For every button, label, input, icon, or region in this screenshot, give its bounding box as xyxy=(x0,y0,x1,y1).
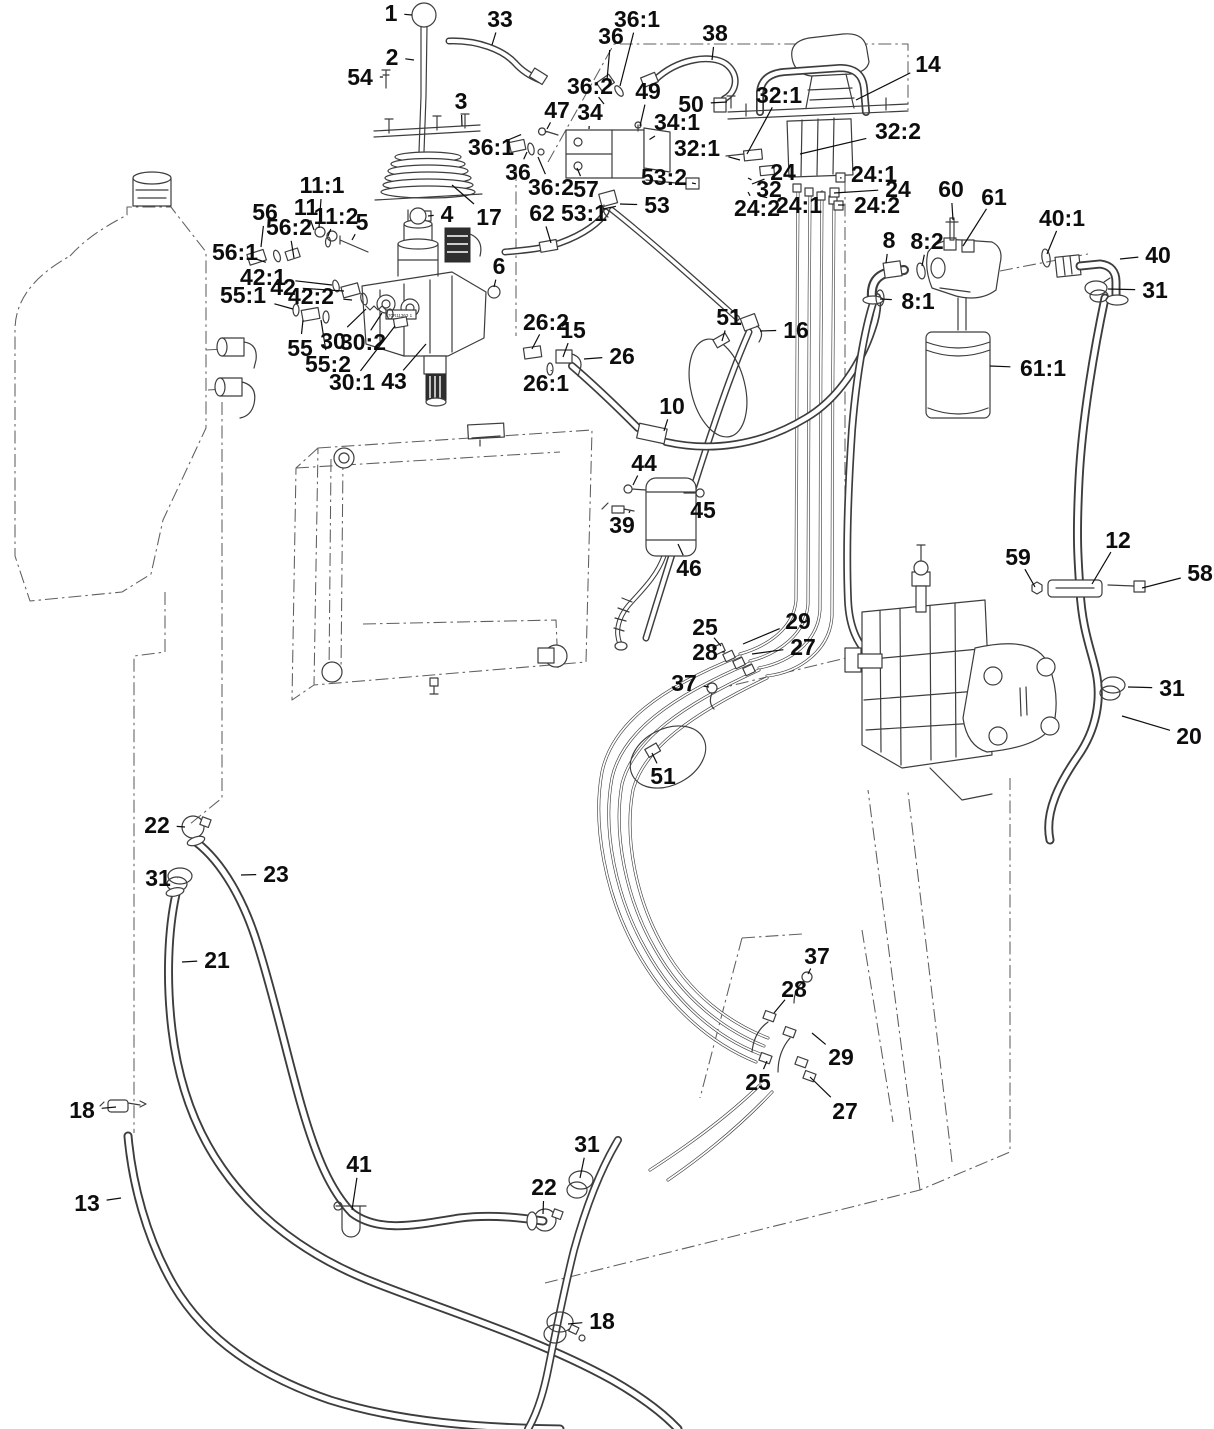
callout-label-27-l: 27 xyxy=(832,1098,858,1124)
callout-leader-16 xyxy=(760,331,776,332)
callout-label-55-1: 55:1 xyxy=(220,282,266,308)
callout-label-18-l: 18 xyxy=(69,1097,95,1123)
callout-label-49: 49 xyxy=(635,78,661,104)
callout-label-12: 12 xyxy=(1105,527,1131,553)
callout-label-53: 53 xyxy=(644,192,670,218)
callout-label-21: 21 xyxy=(204,947,230,973)
fitting-62 xyxy=(539,240,557,253)
callout-label-30-1: 30:1 xyxy=(329,369,375,395)
callout-label-43: 43 xyxy=(381,368,407,394)
fitting-37-u xyxy=(707,683,717,693)
callout-label-3: 3 xyxy=(455,88,468,114)
callout-label-25-u: 25 xyxy=(692,614,718,640)
callout-label-31-ll: 31 xyxy=(145,865,171,891)
callout-label-40: 40 xyxy=(1145,242,1171,268)
callout-label-26-1: 26:1 xyxy=(523,370,569,396)
callout-label-34-1: 34:1 xyxy=(654,109,700,135)
callout-label-28-u: 28 xyxy=(692,639,718,665)
callout-label-57: 57 xyxy=(573,176,599,202)
callout-label-39: 39 xyxy=(609,512,635,538)
callout-label-58: 58 xyxy=(1187,560,1213,586)
diagram-canvas: 70R11363 1 xyxy=(0,0,1214,1429)
callout-label-24-1-l: 24:1 xyxy=(776,192,822,218)
callout-label-56-1: 56:1 xyxy=(212,239,258,265)
callout-label-22-l: 22 xyxy=(144,812,170,838)
hose-46-end xyxy=(615,642,627,650)
callout-label-27-u: 27 xyxy=(790,634,816,660)
callout-label-47: 47 xyxy=(544,97,570,123)
valve-sticker-text: 70R11363 1 xyxy=(388,313,413,318)
reservoir-46-body xyxy=(646,478,696,556)
tank-filler-cap-top xyxy=(133,172,171,184)
callout-label-51-top: 51 xyxy=(716,304,742,330)
callout-label-4: 4 xyxy=(441,201,454,227)
cooler-port-bl xyxy=(322,662,342,682)
callout-label-61-1: 61:1 xyxy=(1020,355,1066,381)
callout-label-8-1: 8:1 xyxy=(901,288,934,314)
callout-leader-8-1 xyxy=(880,299,892,300)
parts-diagram-page: 70R11363 1 xyxy=(0,0,1214,1429)
callout-label-42-2: 42:2 xyxy=(288,283,334,309)
callout-label-23: 23 xyxy=(263,861,289,887)
cooler-port-br-stub xyxy=(538,648,554,663)
callout-label-20: 20 xyxy=(1176,723,1202,749)
callout-label-53-2: 53:2 xyxy=(641,164,687,190)
callout-label-51-low: 51 xyxy=(650,763,676,789)
callout-label-46: 46 xyxy=(676,555,702,581)
callout-label-8-2: 8:2 xyxy=(910,228,943,254)
oil-filter-61-1 xyxy=(926,332,990,418)
callout-label-44: 44 xyxy=(631,450,657,476)
callout-label-40-1: 40:1 xyxy=(1039,205,1085,231)
callout-label-29-l: 29 xyxy=(828,1044,854,1070)
callout-leader-31-rm xyxy=(1128,687,1152,688)
callout-label-15: 15 xyxy=(560,317,586,343)
callout-label-37-l: 37 xyxy=(804,943,830,969)
callout-leader-61-1 xyxy=(990,366,1010,367)
fitting-hose38-end-b xyxy=(714,98,726,112)
callout-label-36-2-top: 36:2 xyxy=(567,73,613,99)
callout-label-54: 54 xyxy=(347,64,373,90)
console-valve-block xyxy=(787,119,853,177)
callout-label-26: 26 xyxy=(609,343,635,369)
callout-label-10: 10 xyxy=(659,393,685,419)
cooler-port-tl xyxy=(334,448,354,468)
callout-label-30-2: 30:2 xyxy=(340,329,386,355)
callout-label-36-l: 36 xyxy=(505,159,531,185)
callout-label-34: 34 xyxy=(577,99,603,125)
callout-label-5: 5 xyxy=(356,209,369,235)
callout-label-61: 61 xyxy=(981,184,1007,210)
callout-label-53-1: 53:1 xyxy=(561,200,607,226)
callout-label-36-1-top: 36:1 xyxy=(614,6,660,32)
callout-label-33: 33 xyxy=(487,6,513,32)
callout-label-41: 41 xyxy=(346,1151,372,1177)
callout-label-37-u: 37 xyxy=(671,670,697,696)
callout-leader-4 xyxy=(428,215,434,216)
callout-leader-42-2 xyxy=(343,299,352,300)
callout-label-62: 62 xyxy=(529,200,555,226)
callout-label-36-2-l: 36:2 xyxy=(528,174,574,200)
callout-label-38: 38 xyxy=(702,20,728,46)
callout-label-17: 17 xyxy=(476,204,502,230)
callout-label-24-2-r: 24:2 xyxy=(854,192,900,218)
callout-label-14: 14 xyxy=(915,51,941,77)
shift-knob xyxy=(412,3,436,27)
callout-label-6: 6 xyxy=(493,253,506,279)
callout-label-45: 45 xyxy=(690,497,716,523)
callout-leader-1 xyxy=(404,14,412,15)
callout-label-1: 1 xyxy=(385,0,398,26)
callout-label-32-1-mid: 32:1 xyxy=(674,135,720,161)
callout-label-22-b: 22 xyxy=(531,1174,557,1200)
callout-label-25-l: 25 xyxy=(745,1069,771,1095)
callout-label-56-2: 56:2 xyxy=(266,214,312,240)
callout-label-2: 2 xyxy=(386,44,399,70)
callout-label-24-2-l: 24:2 xyxy=(734,195,780,221)
callout-leader-22-b xyxy=(543,1201,544,1214)
callout-leader-53-2 xyxy=(692,183,696,184)
callout-label-32-1-top: 32:1 xyxy=(756,82,802,108)
callout-leader-53 xyxy=(620,204,637,205)
callout-leader-22-l xyxy=(177,826,185,827)
callout-label-29-u: 29 xyxy=(785,608,811,634)
callout-label-18-b: 18 xyxy=(589,1308,615,1334)
callout-label-31-b: 31 xyxy=(574,1131,600,1157)
callout-label-59: 59 xyxy=(1005,544,1031,570)
callout-label-13: 13 xyxy=(74,1190,100,1216)
callout-label-32-2: 32:2 xyxy=(875,118,921,144)
callout-label-60: 60 xyxy=(938,176,964,202)
callout-label-36-1-l: 36:1 xyxy=(468,134,514,160)
callout-label-31-tr: 31 xyxy=(1142,277,1168,303)
callout-leader-31-tr xyxy=(1108,289,1135,290)
callout-label-31-rm: 31 xyxy=(1159,675,1185,701)
valve-bottom-coupler xyxy=(424,356,446,406)
callout-label-11-2: 11:2 xyxy=(314,203,359,229)
callout-label-8: 8 xyxy=(883,227,896,253)
callout-label-16: 16 xyxy=(783,317,809,343)
callout-label-28-l: 28 xyxy=(781,976,807,1002)
